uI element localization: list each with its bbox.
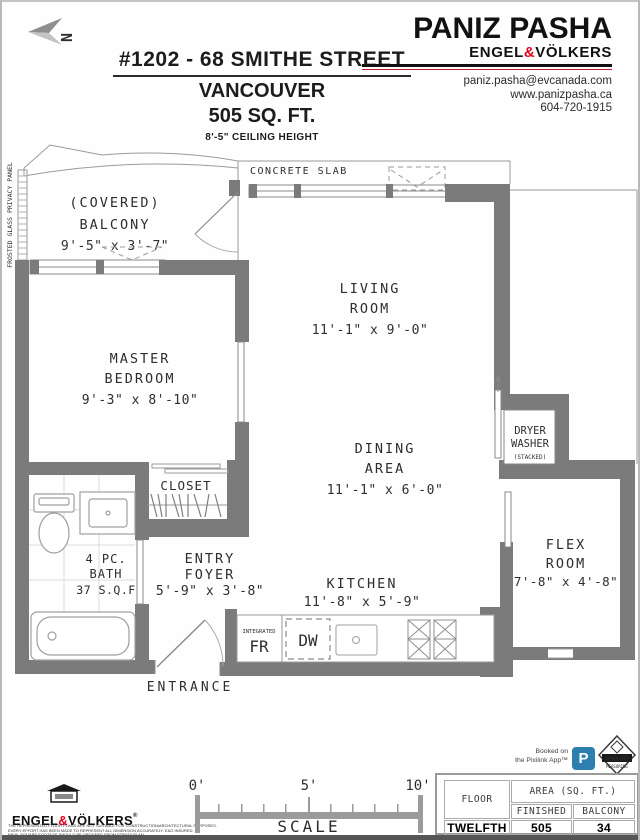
scale-zero: 0' (189, 778, 206, 794)
table-area-header: AREA (SQ. FT.) (511, 780, 635, 803)
bath-label-2: BATH (90, 567, 123, 581)
integrated-label: INTEGRATED (242, 629, 275, 635)
agent-website: www.panizpasha.ca (362, 89, 612, 103)
wall-bath-top (20, 462, 139, 475)
wall-bedroom-divider-top (235, 275, 249, 342)
wall-segment (159, 260, 249, 275)
living-dims: 11'-1" x 9'-0" (312, 323, 429, 338)
wall-laundry-top (494, 394, 569, 410)
concrete-slab-label: CONCRETE SLAB (250, 166, 348, 177)
brand-rule-black (362, 64, 612, 67)
frosted-panel-label: FROSTED GLASS PRIVACY PANEL (6, 162, 14, 268)
agent-name: PANIZ PASHA (362, 14, 612, 44)
ev-house-icon (12, 782, 132, 806)
laundry-label-3: (STACKED) (514, 454, 547, 461)
measuring-label: MEASURING (606, 764, 628, 769)
dining-label-2: AREA (365, 461, 406, 477)
dining-label-1: DINING (355, 441, 416, 457)
kitchen-sink (336, 625, 377, 655)
north-letter: N (57, 33, 75, 42)
booked-line-1: Booked on (472, 748, 568, 757)
wall-entry-pillar (225, 609, 237, 669)
wall-bedroom-divider-bottom (235, 422, 249, 460)
table-balcony-header: BALCONY (573, 804, 635, 819)
pixilink-p-icon: P (572, 747, 595, 770)
table-finished-header: FINISHED (511, 804, 572, 819)
flex-label-2: ROOM (546, 556, 587, 572)
master-label-2: BEDROOM (105, 371, 176, 387)
ev-logo-block: ENGEL&VÖLKERS® (12, 782, 152, 828)
entrance-door: ENTRANCE (147, 620, 234, 695)
balcony: (COVERED) BALCONY 9'-5" x 3'-7" (61, 161, 240, 260)
entry-foyer: ENTRY FOYER 5'-9" x 3'-8" (156, 551, 264, 599)
flex-dims: 7'-8" x 4'-8" (514, 574, 618, 589)
agent-brand: ENGEL&VÖLKERS (362, 44, 612, 61)
bedroom-window-wall (30, 260, 249, 275)
scale-bar: 0' 5' 10' SCALE (152, 772, 442, 836)
foyer-label-1: ENTRY (185, 551, 236, 567)
wall-laundry-right (555, 410, 569, 464)
kitchen-label: KITCHEN (327, 576, 398, 592)
table-row-finished: 505 (511, 820, 572, 835)
balcony-label-2: BALCONY (80, 217, 151, 233)
fridge-label: FR (249, 637, 269, 656)
concrete-slab: CONCRETE SLAB (238, 161, 637, 464)
pixilink-caption: Booked on the Pixilink App™ (472, 748, 568, 765)
wall-bottom-center (220, 662, 494, 676)
living-window-wall (249, 184, 510, 202)
brand-right: VÖLKERS (535, 44, 612, 61)
building-curve (24, 145, 238, 176)
brand-left: ENGEL (469, 44, 524, 61)
table-floor-header: FLOOR (444, 780, 510, 819)
wall-right-outer (620, 479, 635, 660)
table-row-balcony: 34 (573, 820, 635, 835)
laundry-closet: DRYER WASHER (STACKED) (504, 410, 555, 464)
vanity-sink (80, 492, 135, 534)
wall-bottom-left (15, 660, 155, 674)
bottom-border (2, 835, 640, 840)
wall-living-right (494, 200, 510, 394)
brand-rule-red (362, 69, 612, 71)
absolute-measuring-icon: ABSOLUTE MEASURING (598, 734, 636, 776)
agent-block: PANIZ PASHA ENGEL&VÖLKERS paniz.pasha@ev… (362, 14, 612, 116)
flex-sliding-door (505, 492, 511, 547)
agent-phone: 604-720-1915 (362, 102, 612, 116)
bath-label-3: 37 S.Q.F (76, 583, 135, 597)
dining-dims: 11'-1" x 6'-0" (327, 483, 444, 498)
balcony-label-1: (COVERED) (69, 195, 160, 211)
foyer-label-2: FOYER (185, 567, 236, 583)
bathroom: 4 PC. BATH 37 S.Q.F (29, 475, 136, 660)
floorplan-drawing: FROSTED GLASS PRIVACY PANEL CONCRETE SLA… (2, 134, 640, 714)
bath-pocket-door (137, 540, 143, 604)
scale-five: 5' (301, 778, 318, 794)
north-arrow-icon: N (14, 8, 76, 56)
scale-ten: 10' (405, 778, 430, 794)
booked-line-2: the Pixilink App™ (472, 757, 568, 766)
closet-label: CLOSET (160, 478, 211, 493)
flex-label-1: FLEX (546, 537, 587, 553)
bedroom-sliding-door (238, 342, 244, 422)
master-dims: 9'-3" x 8'-10" (82, 393, 199, 408)
bath-label-1: 4 PC. (85, 552, 126, 566)
wall-flex-bottom (513, 647, 635, 660)
kitchen-dims: 11'-8" x 5'-9" (304, 595, 421, 610)
entry-closet: CLOSET (147, 464, 228, 517)
master-label-1: MASTER (110, 351, 171, 367)
wall-bath-right-upper (135, 462, 149, 540)
bathtub (31, 612, 135, 660)
laundry-label-1: DRYER (514, 425, 546, 437)
flex-bottom-notch (548, 649, 573, 658)
living-label-2: ROOM (350, 301, 391, 317)
entrance-label: ENTRANCE (147, 680, 234, 695)
ev-reg: ® (133, 813, 138, 819)
balcony-door-arc (195, 234, 238, 252)
dishwasher-label: DW (298, 631, 318, 650)
toilet (34, 494, 74, 553)
absolute-label: ABSOLUTE (605, 757, 629, 763)
area-table: FLOOR AREA (SQ. FT.) FINISHED BALCONY TW… (435, 773, 639, 835)
agent-email: paniz.pasha@evcanada.com (362, 75, 612, 89)
kitchen: INTEGRATED FR DW KITCHEN 11'-8" x 5'-9" (237, 576, 494, 662)
living-label-1: LIVING (340, 281, 401, 297)
laundry-label-2: WASHER (511, 438, 550, 450)
scale-label: SCALE (277, 817, 340, 836)
brand-amp: & (524, 44, 535, 61)
foyer-dims: 5'-9" x 3'-8" (156, 584, 264, 599)
wall-closet-bottom (145, 519, 249, 537)
wall-post (229, 180, 240, 196)
wall-corner-block (445, 184, 510, 202)
floorplan-sheet: N #1202 - 68 SMITHE STREET VANCOUVER 505… (0, 0, 640, 840)
frosted-glass-panel: FROSTED GLASS PRIVACY PANEL (6, 162, 27, 268)
table-row-floor: TWELFTH (444, 820, 510, 835)
